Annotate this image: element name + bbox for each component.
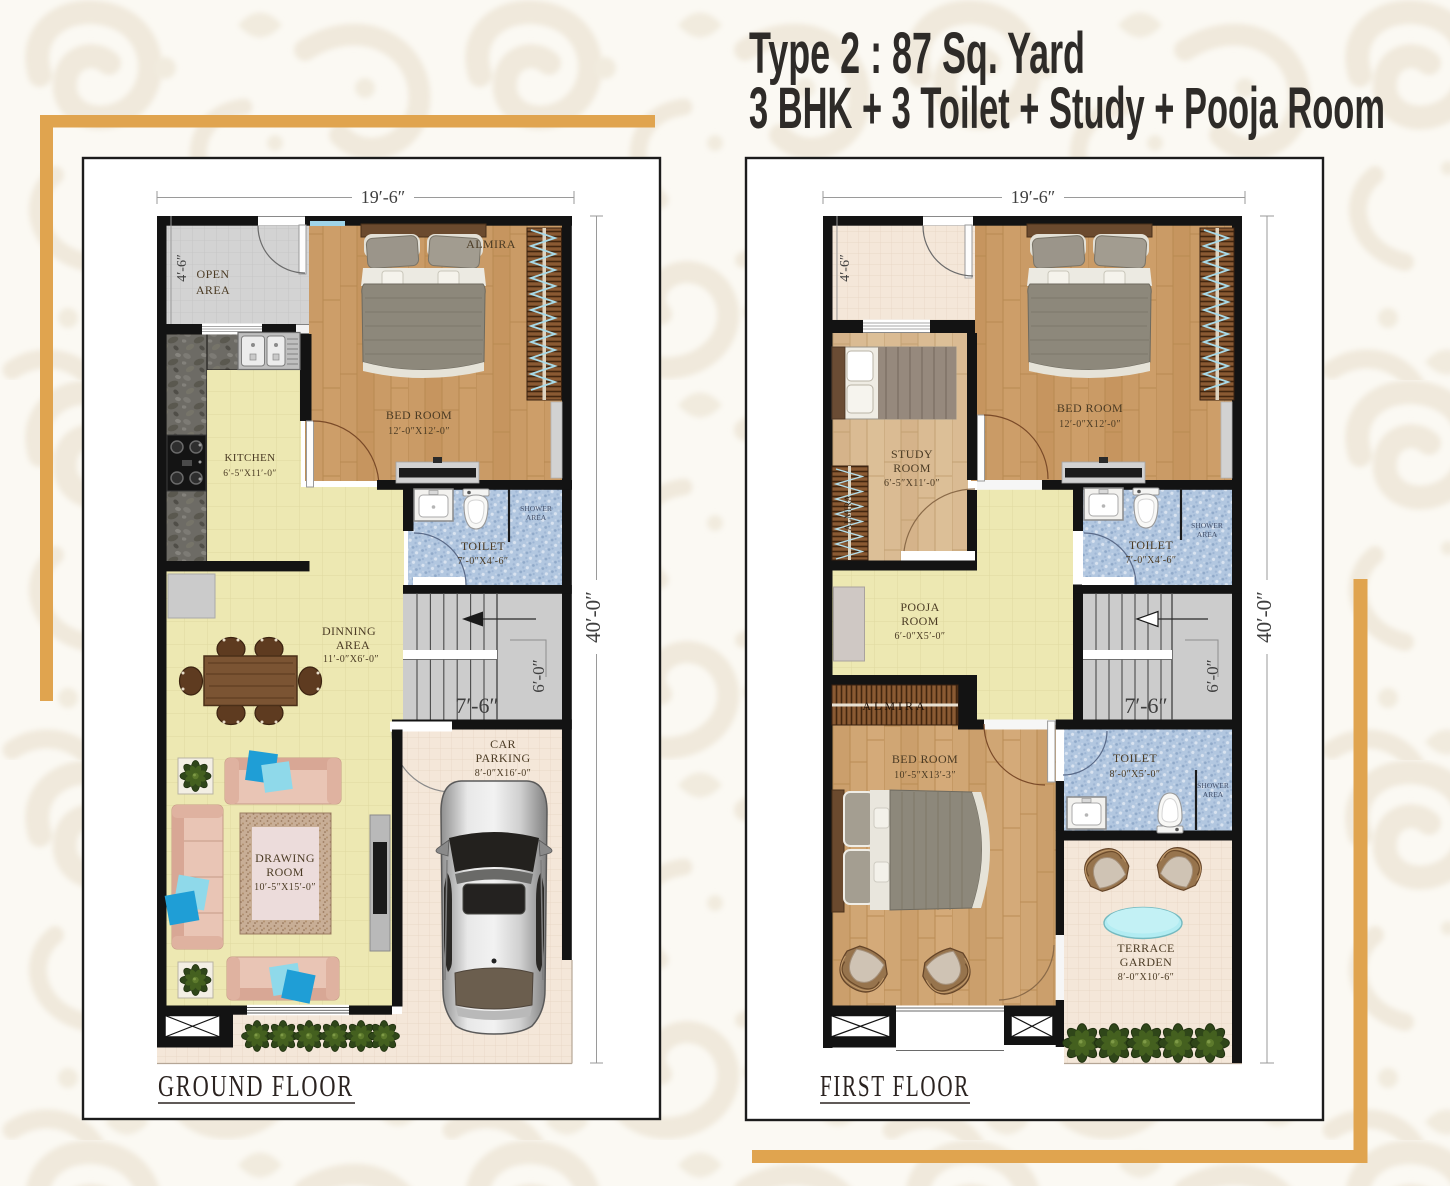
svg-text:8′-0″X16′-0″: 8′-0″X16′-0″ <box>475 768 531 779</box>
svg-text:ALMIRA: ALMIRA <box>466 237 516 251</box>
svg-text:40′-0″: 40′-0″ <box>581 591 605 643</box>
svg-text:7′-0″X4′-6″: 7′-0″X4′-6″ <box>1126 555 1177 566</box>
svg-text:4′-6″: 4′-6″ <box>175 254 190 282</box>
svg-text:STUDY: STUDY <box>891 447 933 461</box>
svg-text:TOILET: TOILET <box>461 539 505 553</box>
svg-text:7′-6″: 7′-6″ <box>455 693 498 718</box>
svg-text:GROUND FLOOR: GROUND FLOOR <box>158 1068 354 1103</box>
svg-text:AREA: AREA <box>196 283 230 297</box>
svg-text:SHOWER: SHOWER <box>520 504 552 513</box>
svg-text:DRAWING: DRAWING <box>255 851 315 865</box>
svg-text:ROOM: ROOM <box>901 614 939 628</box>
svg-text:12′-0″X12′-0″: 12′-0″X12′-0″ <box>1059 419 1121 430</box>
svg-text:12′-0″X12′-0″: 12′-0″X12′-0″ <box>388 426 450 437</box>
svg-text:6′-0″X5′-0″: 6′-0″X5′-0″ <box>895 631 946 642</box>
svg-text:SHOWER: SHOWER <box>1197 781 1229 790</box>
svg-text:6′-5″X11′-0″: 6′-5″X11′-0″ <box>223 469 276 479</box>
svg-text:AREA: AREA <box>526 513 547 522</box>
svg-text:4′-6″: 4′-6″ <box>838 254 853 282</box>
svg-text:CAR: CAR <box>490 737 516 751</box>
svg-text:ROOM: ROOM <box>893 461 931 475</box>
svg-text:ALMIRA: ALMIRA <box>862 699 927 713</box>
svg-text:SHOWER: SHOWER <box>1191 521 1223 530</box>
svg-text:FIRST FLOOR: FIRST FLOOR <box>820 1068 970 1103</box>
svg-text:19′-6″: 19′-6″ <box>361 187 405 207</box>
svg-text:TOILET: TOILET <box>1129 538 1173 552</box>
svg-text:AREA: AREA <box>336 638 370 652</box>
svg-text:OPEN: OPEN <box>197 267 230 281</box>
svg-text:10′-5″X13′-3″: 10′-5″X13′-3″ <box>894 770 956 781</box>
svg-text:7′-0″X4′-6″: 7′-0″X4′-6″ <box>458 556 509 567</box>
svg-text:BED ROOM: BED ROOM <box>1057 401 1123 415</box>
svg-text:PARKING: PARKING <box>475 751 530 765</box>
svg-text:11′-0″X6′-0″: 11′-0″X6′-0″ <box>323 654 379 665</box>
svg-text:BED ROOM: BED ROOM <box>892 752 958 766</box>
svg-text:ROOM: ROOM <box>266 865 304 879</box>
svg-text:BED ROOM: BED ROOM <box>386 408 452 422</box>
svg-text:6′-5″X11′-0″: 6′-5″X11′-0″ <box>884 478 940 489</box>
svg-text:KITCHEN: KITCHEN <box>224 452 275 464</box>
svg-text:8′-0″X10′-6″: 8′-0″X10′-6″ <box>1118 972 1174 983</box>
svg-text:7′-6″: 7′-6″ <box>1124 693 1167 718</box>
svg-text:AREA: AREA <box>1203 790 1224 799</box>
svg-text:8′-0″X5′-0″: 8′-0″X5′-0″ <box>1110 769 1161 780</box>
svg-text:TOILET: TOILET <box>1113 751 1157 765</box>
svg-text:TERRACE: TERRACE <box>1117 941 1174 955</box>
svg-text:6′-0″: 6′-0″ <box>529 659 548 692</box>
svg-text:AREA: AREA <box>1197 530 1218 539</box>
svg-text:10′-5″X15′-0″: 10′-5″X15′-0″ <box>254 882 316 893</box>
svg-text:ALMIRA: ALMIRA <box>843 495 853 531</box>
svg-text:40′-0″: 40′-0″ <box>1252 591 1276 643</box>
svg-text:DINNING: DINNING <box>322 624 376 638</box>
svg-text:6′-0″: 6′-0″ <box>1203 659 1222 692</box>
svg-text:19′-6″: 19′-6″ <box>1011 187 1055 207</box>
svg-text:3 BHK + 3 Toilet + Study + Poo: 3 BHK + 3 Toilet + Study + Pooja Room <box>749 76 1385 141</box>
svg-text:POOJA: POOJA <box>900 600 939 614</box>
svg-text:GARDEN: GARDEN <box>1120 955 1172 969</box>
